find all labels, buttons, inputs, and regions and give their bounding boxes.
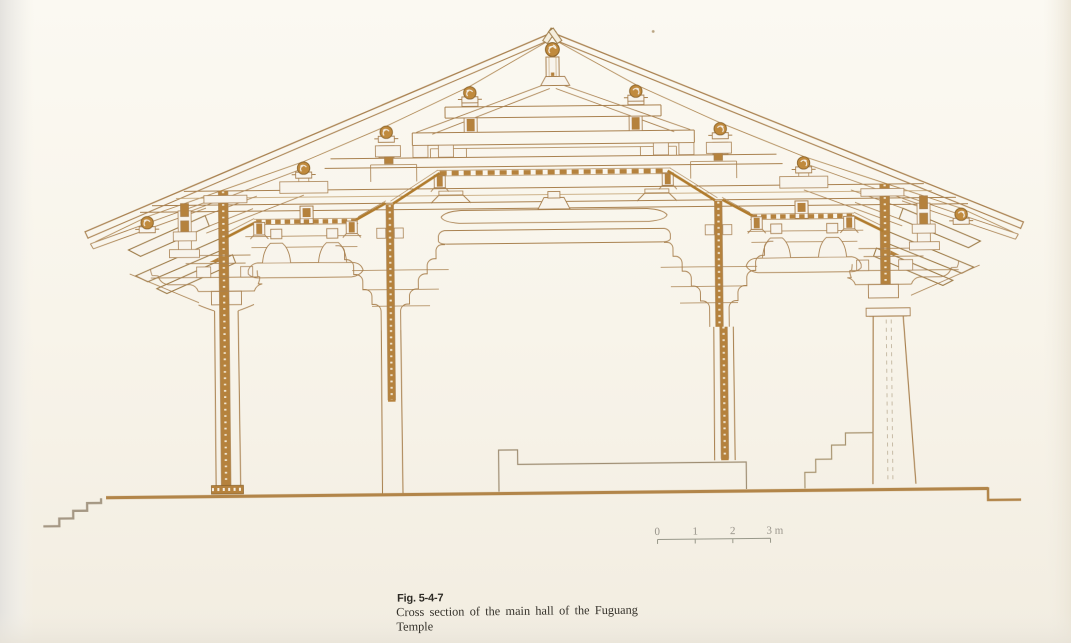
svg-text:3 m: 3 m [766, 525, 783, 537]
svg-text:2: 2 [730, 525, 736, 537]
svg-text:0: 0 [654, 526, 660, 538]
svg-text:Cross section of the main hall: Cross section of the main hall of the Fu… [396, 603, 638, 620]
svg-text:1: 1 [692, 526, 698, 538]
svg-text:Fig. 5-4-7: Fig. 5-4-7 [397, 592, 443, 604]
svg-text:Temple: Temple [396, 619, 433, 633]
